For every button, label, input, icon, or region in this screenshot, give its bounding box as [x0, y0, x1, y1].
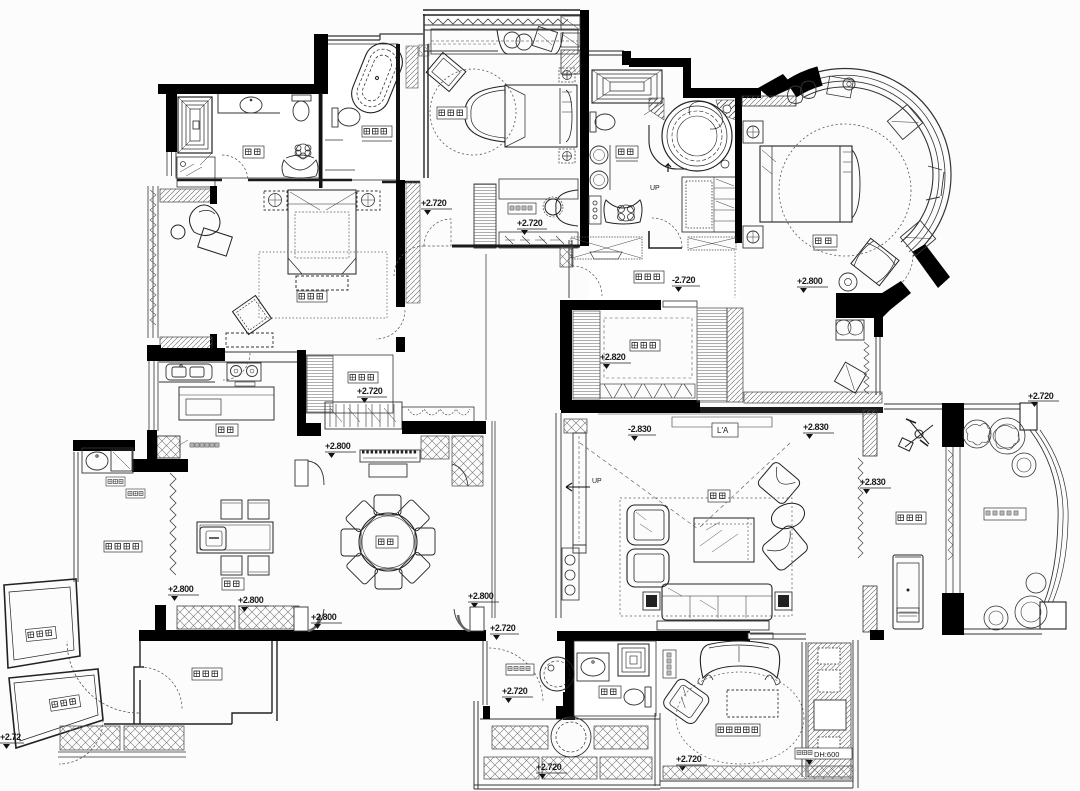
svg-text:+2.800: +2.800 [238, 595, 264, 605]
svg-text:+2.720: +2.720 [1028, 391, 1054, 401]
svg-text:+2.830: +2.830 [860, 477, 886, 487]
svg-text:+2.72: +2.72 [0, 732, 21, 742]
svg-text:+2.820: +2.820 [600, 352, 626, 362]
svg-text:-2.830: -2.830 [628, 424, 652, 434]
svg-text:+2.720: +2.720 [517, 218, 543, 228]
svg-text:+2.800: +2.800 [311, 612, 337, 622]
svg-text:DH:600: DH:600 [814, 750, 839, 759]
svg-text:+2.720: +2.720 [421, 198, 447, 208]
svg-text:+2.830: +2.830 [803, 422, 829, 432]
svg-text:+2.720: +2.720 [357, 386, 383, 396]
svg-text:UP: UP [592, 478, 602, 485]
svg-text:+2.800: +2.800 [168, 584, 194, 594]
svg-text:L'A: L'A [717, 426, 729, 435]
svg-text:+2.720: +2.720 [490, 623, 516, 633]
svg-text:+2.800: +2.800 [325, 441, 351, 451]
svg-text:-2.720: -2.720 [672, 275, 696, 285]
svg-text:+2.720: +2.720 [502, 686, 528, 696]
svg-text:+2.720: +2.720 [536, 762, 562, 772]
svg-text:+2.800: +2.800 [797, 276, 823, 286]
svg-text:+2.720: +2.720 [676, 754, 702, 764]
svg-text:UP: UP [650, 185, 660, 192]
svg-text:+2.800: +2.800 [468, 591, 494, 601]
